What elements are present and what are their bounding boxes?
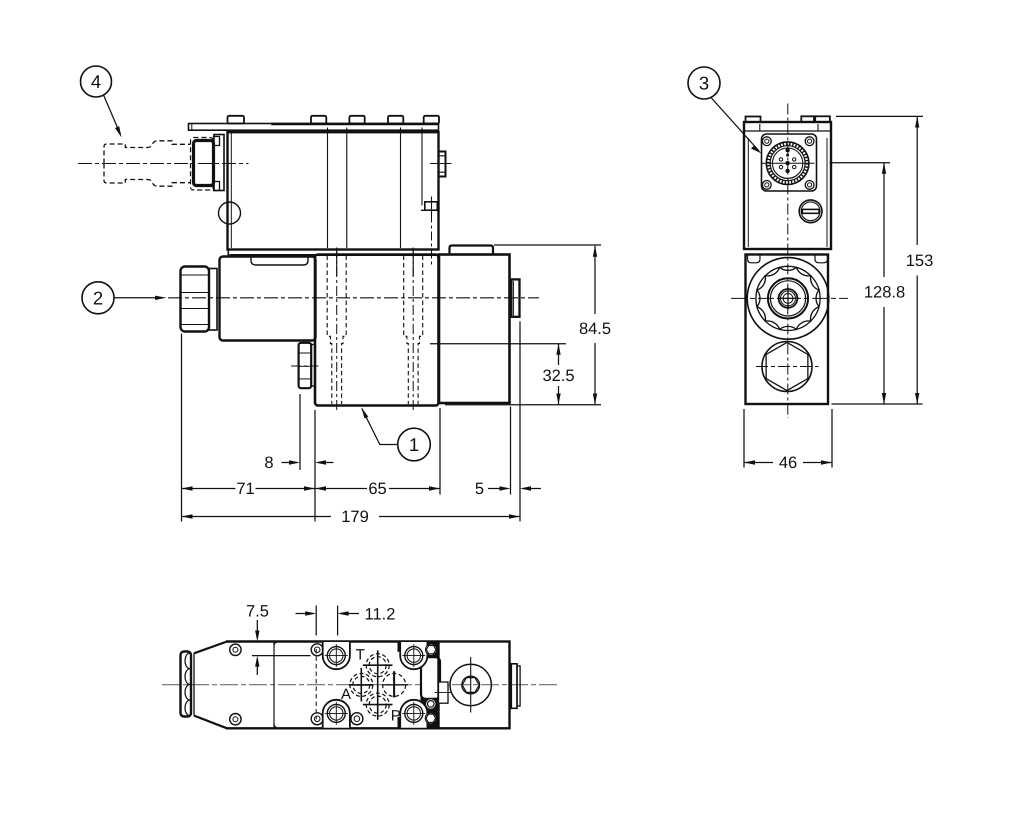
svg-text:P: P: [391, 708, 401, 725]
svg-text:8: 8: [264, 454, 273, 472]
svg-text:153: 153: [906, 252, 934, 270]
svg-text:84.5: 84.5: [579, 320, 611, 338]
svg-text:32.5: 32.5: [542, 367, 574, 385]
svg-text:65: 65: [368, 480, 386, 498]
svg-text:T: T: [356, 646, 365, 663]
svg-text:71: 71: [236, 480, 254, 498]
svg-text:46: 46: [779, 454, 797, 472]
svg-text:5: 5: [475, 480, 484, 498]
svg-text:2: 2: [93, 287, 103, 308]
svg-text:128.8: 128.8: [864, 284, 905, 302]
svg-text:179: 179: [341, 508, 369, 526]
svg-text:11.2: 11.2: [365, 606, 396, 624]
svg-text:3: 3: [699, 73, 709, 94]
svg-text:4: 4: [91, 71, 101, 92]
svg-text:1: 1: [409, 434, 419, 455]
svg-text:7.5: 7.5: [246, 603, 269, 621]
svg-text:A: A: [341, 686, 351, 703]
